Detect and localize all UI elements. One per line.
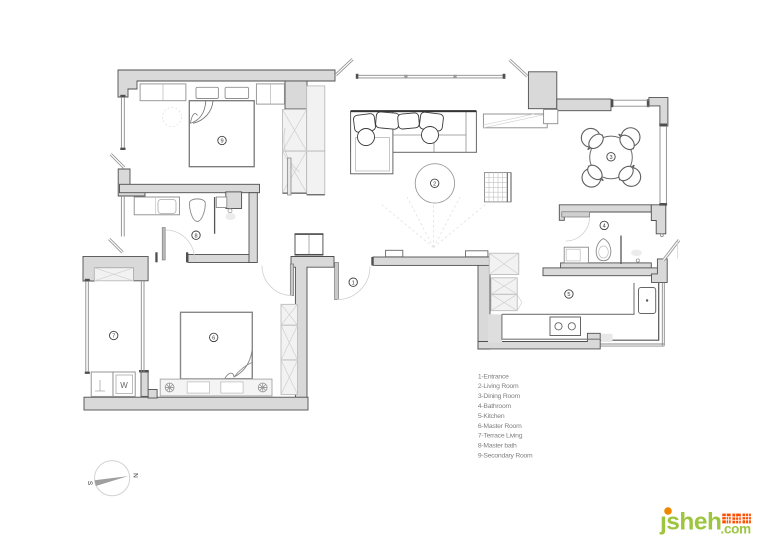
svg-text:7-Terrace Living: 7-Terrace Living bbox=[478, 433, 523, 440]
svg-text:6: 6 bbox=[212, 336, 215, 342]
svg-text:N: N bbox=[132, 473, 139, 478]
svg-text:S: S bbox=[86, 481, 93, 486]
svg-text:2-Living Room: 2-Living Room bbox=[478, 383, 519, 390]
svg-text:3-Dining Room: 3-Dining Room bbox=[478, 393, 521, 400]
svg-text:4: 4 bbox=[603, 224, 606, 230]
svg-text:6-Master Room: 6-Master Room bbox=[478, 423, 522, 430]
svg-text:8: 8 bbox=[194, 233, 197, 239]
svg-text:1: 1 bbox=[352, 280, 355, 286]
svg-text:4-Bathroom: 4-Bathroom bbox=[478, 403, 512, 410]
svg-text:8-Master bath: 8-Master bath bbox=[478, 443, 517, 450]
svg-text:2: 2 bbox=[433, 181, 436, 187]
svg-text:5-Kitchen: 5-Kitchen bbox=[478, 413, 505, 420]
svg-text:W: W bbox=[120, 381, 128, 390]
svg-text:9-Secondary Room: 9-Secondary Room bbox=[478, 452, 533, 459]
svg-text:1-Entrance: 1-Entrance bbox=[478, 373, 509, 380]
svg-text:7: 7 bbox=[112, 334, 115, 340]
svg-text:9: 9 bbox=[220, 139, 223, 145]
svg-text:5: 5 bbox=[567, 292, 570, 298]
svg-text:3: 3 bbox=[609, 155, 612, 161]
svg-text:.com: .com bbox=[721, 522, 752, 537]
